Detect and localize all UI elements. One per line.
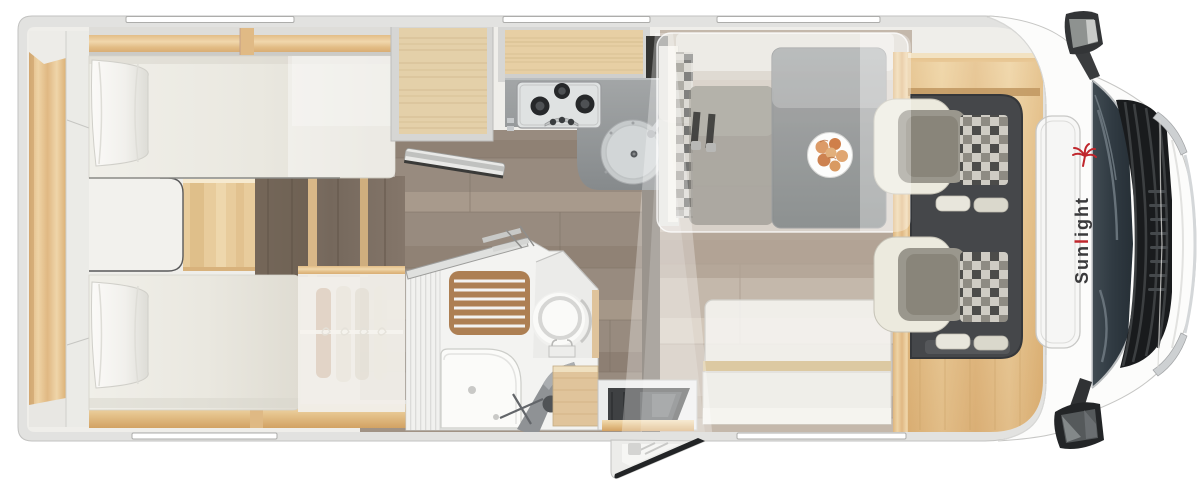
svg-text:Sunlight: Sunlight — [1072, 196, 1092, 284]
